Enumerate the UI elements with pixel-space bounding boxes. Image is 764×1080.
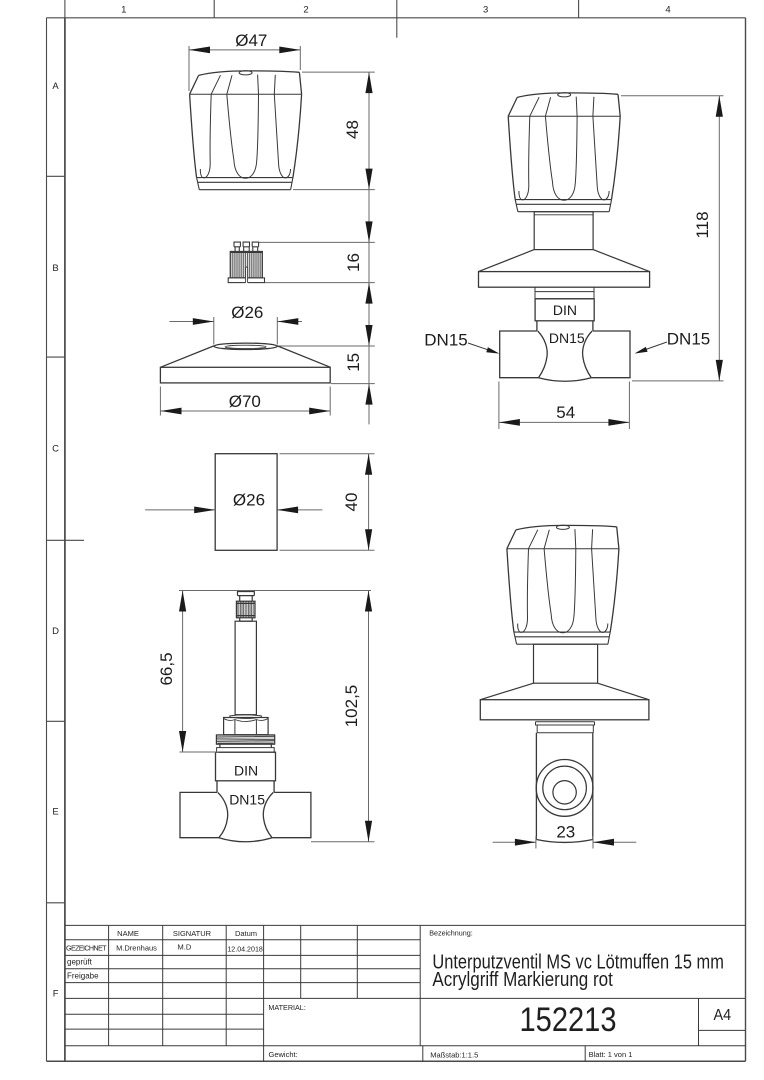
svg-text:152213: 152213 xyxy=(520,1001,617,1039)
svg-text:Blatt: 1 von 1: Blatt: 1 von 1 xyxy=(589,1050,633,1059)
svg-text:23: 23 xyxy=(556,823,575,842)
svg-text:1: 1 xyxy=(121,5,126,16)
svg-text:Ø70: Ø70 xyxy=(229,392,261,411)
svg-text:54: 54 xyxy=(556,403,575,422)
svg-text:118: 118 xyxy=(693,211,712,238)
svg-text:E: E xyxy=(52,806,58,817)
svg-text:MATERIAL:: MATERIAL: xyxy=(268,1003,305,1012)
svg-text:A4: A4 xyxy=(714,1007,732,1024)
svg-text:66,5: 66,5 xyxy=(157,652,176,685)
svg-text:SIGNATUR: SIGNATUR xyxy=(173,929,212,938)
svg-text:Ø26: Ø26 xyxy=(231,303,263,322)
svg-text:Bezeichnung:: Bezeichnung: xyxy=(429,929,473,938)
svg-text:102,5: 102,5 xyxy=(342,685,361,728)
svg-text:B: B xyxy=(52,263,58,274)
svg-text:F: F xyxy=(53,989,59,1000)
svg-text:D: D xyxy=(52,626,59,637)
svg-text:DN15: DN15 xyxy=(549,330,585,346)
svg-text:4: 4 xyxy=(665,5,670,16)
svg-text:DN15: DN15 xyxy=(424,331,467,350)
svg-text:Maßstab:1:1.5: Maßstab:1:1.5 xyxy=(430,1050,478,1059)
svg-text:12.04.2018: 12.04.2018 xyxy=(227,946,263,953)
svg-text:40: 40 xyxy=(342,493,361,512)
svg-text:2: 2 xyxy=(303,5,308,16)
svg-text:Freigabe: Freigabe xyxy=(67,971,99,980)
svg-text:16: 16 xyxy=(344,253,363,272)
svg-text:Ø26: Ø26 xyxy=(233,490,265,509)
svg-text:M.D: M.D xyxy=(178,943,192,952)
svg-text:Acrylgriff Markierung rot: Acrylgriff Markierung rot xyxy=(432,969,613,991)
svg-text:GEZEICHNET: GEZEICHNET xyxy=(66,943,107,952)
svg-text:A: A xyxy=(52,81,59,92)
svg-text:Gewicht:: Gewicht: xyxy=(269,1050,298,1059)
svg-text:DN15: DN15 xyxy=(229,791,265,807)
svg-text:DIN: DIN xyxy=(553,302,577,318)
svg-text:Datum: Datum xyxy=(235,929,257,938)
svg-text:3: 3 xyxy=(483,5,488,16)
svg-text:Ø47: Ø47 xyxy=(235,31,267,50)
svg-text:C: C xyxy=(52,443,59,454)
svg-text:M.Drenhaus: M.Drenhaus xyxy=(116,943,157,952)
svg-text:15: 15 xyxy=(344,353,363,372)
svg-text:48: 48 xyxy=(343,120,362,139)
svg-text:DIN: DIN xyxy=(234,763,258,779)
svg-text:geprüft: geprüft xyxy=(67,958,93,967)
svg-text:DN15: DN15 xyxy=(667,330,710,349)
svg-text:NAME: NAME xyxy=(117,929,139,938)
